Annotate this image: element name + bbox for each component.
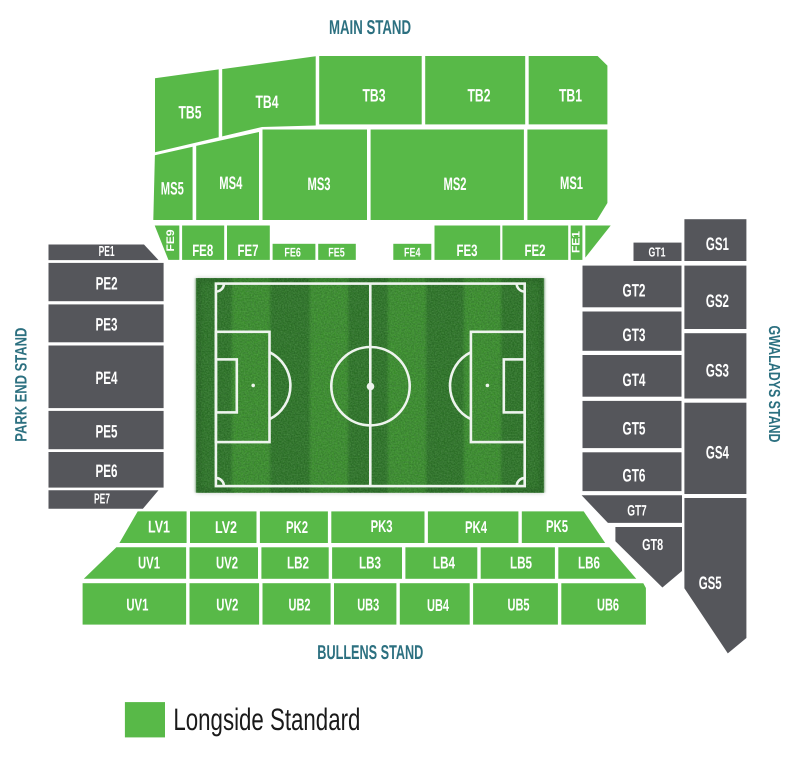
svg-text:TB1: TB1 (559, 86, 582, 106)
svg-text:GWALADYS STAND: GWALADYS STAND (765, 326, 782, 443)
svg-text:GT6: GT6 (623, 466, 646, 486)
svg-text:GS3: GS3 (706, 360, 729, 380)
svg-text:FE2: FE2 (525, 242, 546, 260)
svg-text:GS2: GS2 (706, 291, 729, 311)
svg-text:PE2: PE2 (96, 273, 118, 293)
svg-text:GT2: GT2 (623, 281, 646, 301)
svg-text:PE1: PE1 (99, 244, 115, 260)
svg-text:PE7: PE7 (94, 492, 110, 508)
svg-text:MS3: MS3 (308, 174, 331, 194)
svg-text:UB4: UB4 (427, 596, 449, 615)
svg-text:PE4: PE4 (96, 368, 118, 388)
svg-text:LB5: LB5 (510, 554, 532, 573)
svg-text:MS2: MS2 (444, 174, 467, 194)
svg-text:PE5: PE5 (96, 421, 118, 441)
svg-text:UB3: UB3 (357, 596, 379, 615)
svg-text:PK5: PK5 (546, 517, 568, 536)
svg-text:LB6: LB6 (578, 554, 600, 573)
svg-text:MS4: MS4 (219, 173, 242, 193)
svg-text:MAIN STAND: MAIN STAND (329, 17, 411, 39)
svg-text:TB5: TB5 (179, 103, 202, 123)
svg-text:GS1: GS1 (706, 234, 729, 254)
svg-text:UB2: UB2 (289, 596, 311, 615)
svg-text:GT3: GT3 (623, 325, 646, 345)
svg-text:FE6: FE6 (284, 245, 301, 259)
svg-text:GT7: GT7 (627, 503, 647, 520)
svg-text:PK4: PK4 (465, 518, 487, 537)
svg-text:UV2: UV2 (216, 596, 238, 615)
svg-text:GS4: GS4 (706, 442, 729, 462)
svg-text:UV1: UV1 (126, 596, 148, 615)
svg-text:TB4: TB4 (256, 92, 279, 112)
svg-text:TB3: TB3 (363, 86, 386, 106)
svg-text:GT5: GT5 (623, 419, 646, 439)
svg-text:UV1: UV1 (138, 554, 160, 573)
svg-text:MS5: MS5 (161, 179, 184, 199)
svg-text:PK2: PK2 (286, 518, 308, 537)
svg-text:PARK END STAND: PARK END STAND (13, 328, 31, 442)
svg-text:LB4: LB4 (433, 554, 455, 573)
svg-text:FE1: FE1 (571, 231, 583, 253)
svg-text:UV2: UV2 (216, 554, 238, 573)
svg-text:UB6: UB6 (597, 596, 619, 615)
svg-text:LB3: LB3 (359, 554, 381, 573)
svg-text:FE3: FE3 (457, 242, 478, 260)
svg-text:PE6: PE6 (96, 461, 118, 481)
svg-text:FE4: FE4 (404, 245, 421, 259)
svg-text:BULLENS STAND: BULLENS STAND (317, 642, 423, 664)
svg-text:FE7: FE7 (238, 242, 259, 260)
svg-text:PE3: PE3 (96, 315, 118, 335)
svg-text:UB5: UB5 (508, 596, 530, 615)
svg-text:FE9: FE9 (165, 230, 177, 252)
svg-text:GS5: GS5 (699, 573, 722, 593)
svg-text:TB2: TB2 (468, 86, 491, 106)
svg-text:GT4: GT4 (623, 370, 646, 390)
svg-text:FE8: FE8 (192, 242, 213, 260)
svg-text:GT1: GT1 (649, 245, 666, 260)
svg-text:LB2: LB2 (287, 554, 309, 573)
svg-text:GT8: GT8 (642, 537, 663, 554)
svg-text:MS1: MS1 (560, 173, 583, 193)
svg-text:Longside Standard: Longside Standard (173, 702, 360, 737)
svg-text:LV2: LV2 (215, 518, 237, 537)
svg-text:FE5: FE5 (328, 245, 345, 259)
svg-text:LV1: LV1 (148, 518, 170, 537)
svg-text:PK3: PK3 (371, 517, 393, 536)
